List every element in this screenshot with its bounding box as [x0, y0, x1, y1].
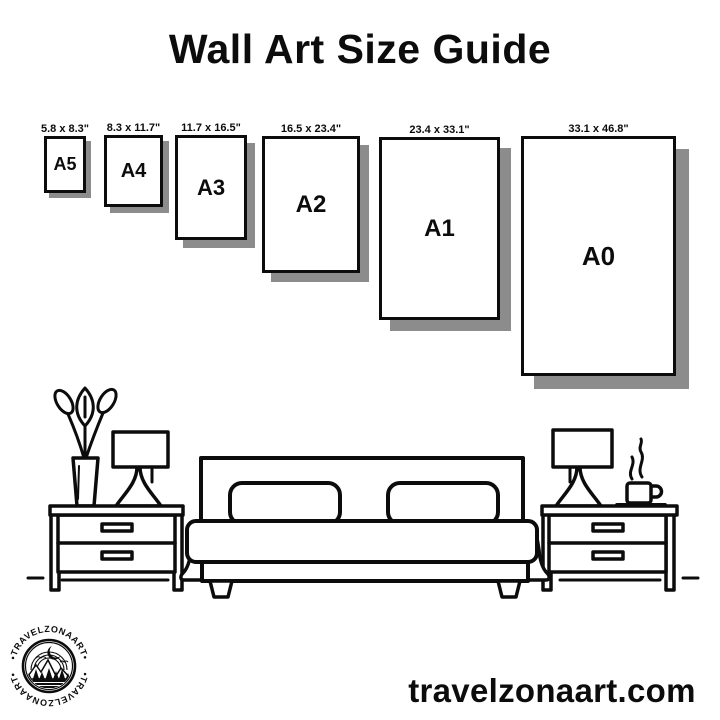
table-lamp-icon	[113, 432, 168, 506]
size-card-a4: 8.3 x 11.7" A4	[104, 135, 163, 207]
mattress	[187, 521, 537, 562]
pillow-icon	[388, 483, 498, 524]
size-code-label: A5	[53, 154, 76, 175]
wall-art-size-guide-poster: Wall Art Size Guide 5.8 x 8.3" A5 8.3 x …	[0, 0, 720, 720]
pillow-icon	[230, 483, 340, 524]
size-dimensions-label: 11.7 x 16.5"	[181, 122, 241, 134]
size-code-label: A4	[121, 160, 147, 183]
size-code-label: A2	[296, 191, 327, 219]
bed-icon	[181, 458, 549, 597]
size-card-a5: 5.8 x 8.3" A5	[44, 136, 86, 193]
nightstand-top	[50, 506, 183, 515]
size-dimensions-label: 5.8 x 8.3"	[41, 123, 89, 135]
size-dimensions-label: 33.1 x 46.8"	[568, 123, 628, 135]
size-card-a1: 23.4 x 33.1" A1	[379, 137, 500, 320]
size-card-a0: 33.1 x 46.8" A0	[521, 136, 676, 376]
table-lamp-icon	[553, 430, 612, 506]
page-title: Wall Art Size Guide	[0, 26, 720, 73]
brand-badge-logo: •TRAVELZONAART• •TRAVELZONAART•	[9, 623, 89, 709]
badge-emblem-mountain-scene	[25, 646, 72, 687]
nightstand-top	[542, 506, 677, 515]
size-code-label: A3	[197, 175, 225, 201]
nightstand-icon	[51, 509, 182, 590]
bed-leg	[210, 581, 232, 597]
website-url-text: travelzonaart.com	[392, 672, 712, 710]
bed-base	[202, 562, 528, 581]
coffee-cup-icon	[617, 439, 665, 505]
size-dimensions-label: 16.5 x 23.4"	[281, 123, 341, 135]
size-dimensions-label: 23.4 x 33.1"	[409, 124, 469, 136]
plant-icon	[51, 386, 120, 506]
size-card-a2: 16.5 x 23.4" A2	[262, 136, 360, 273]
bedroom-illustration	[20, 382, 710, 607]
size-code-label: A0	[582, 241, 615, 272]
bed-leg	[498, 581, 520, 597]
size-card-a3: 11.7 x 16.5" A3	[175, 135, 247, 240]
size-dimensions-label: 8.3 x 11.7"	[107, 122, 161, 134]
water-lines	[35, 684, 63, 687]
size-code-label: A1	[424, 215, 455, 243]
nightstand-icon	[543, 509, 674, 590]
